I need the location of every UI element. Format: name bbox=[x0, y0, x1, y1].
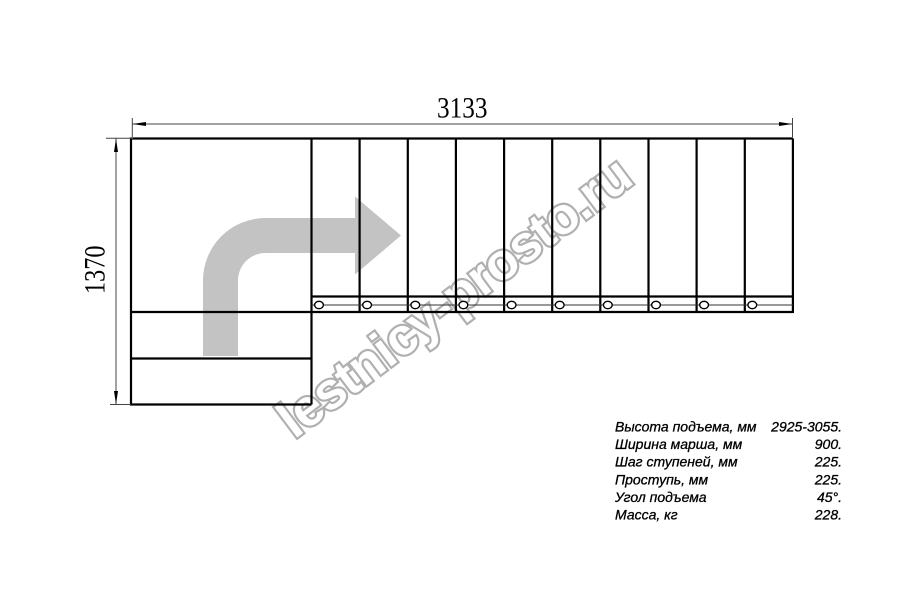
svg-text:Высота подъема, мм: Высота подъема, мм bbox=[615, 418, 757, 434]
svg-text:1370: 1370 bbox=[79, 246, 112, 295]
svg-text:3133: 3133 bbox=[437, 92, 488, 125]
svg-text:45°.: 45°. bbox=[817, 489, 842, 505]
svg-text:Ширина марша, мм: Ширина марша, мм bbox=[615, 436, 743, 452]
svg-text:228.: 228. bbox=[814, 507, 842, 523]
svg-text:225.: 225. bbox=[814, 454, 842, 470]
svg-text:Шаг ступеней, мм: Шаг ступеней, мм bbox=[615, 454, 738, 470]
svg-text:900.: 900. bbox=[815, 436, 842, 452]
svg-text:2925-3055.: 2925-3055. bbox=[770, 418, 842, 434]
svg-text:225.: 225. bbox=[814, 471, 842, 487]
svg-text:Масса, кг: Масса, кг bbox=[615, 507, 678, 523]
svg-text:Проступь, мм: Проступь, мм bbox=[615, 471, 709, 487]
svg-text:Угол подъема: Угол подъема bbox=[614, 489, 707, 505]
